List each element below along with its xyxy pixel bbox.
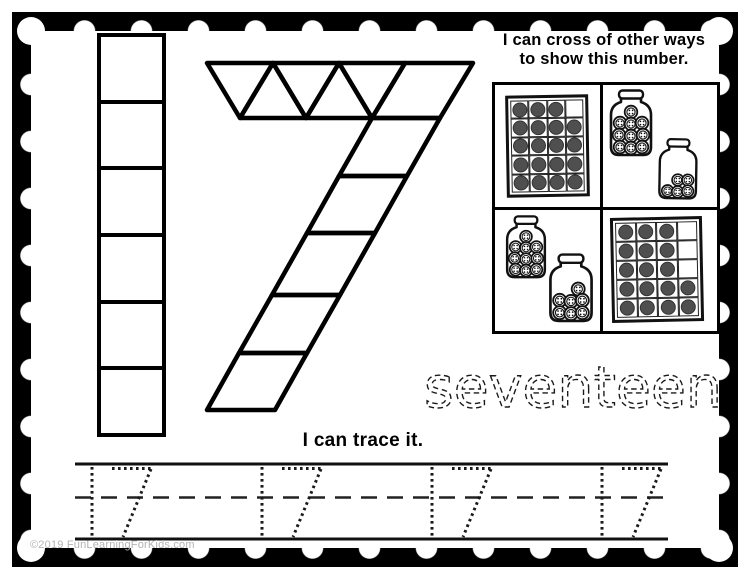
instruction-line-1: I can cross of other ways <box>478 31 730 50</box>
frame-cell <box>566 173 585 192</box>
representations-grid <box>492 82 720 334</box>
counter-dot <box>619 226 632 239</box>
counter-dot <box>550 121 563 134</box>
frame-cell <box>511 119 530 138</box>
counter-dot <box>640 263 653 276</box>
frame-cell <box>566 136 585 155</box>
counter-dot <box>568 139 581 152</box>
counter-dot <box>620 302 633 315</box>
frame-cell <box>529 155 548 174</box>
quadrant-twenty-frame-19 <box>495 85 600 207</box>
counter-dot <box>660 225 673 238</box>
trace-word-seventeen: seventeen <box>418 354 730 418</box>
twenty-frame <box>610 216 704 323</box>
trace-label: I can trace it. <box>278 430 448 452</box>
button-jar-icon <box>606 88 656 158</box>
frame-cell <box>548 155 567 174</box>
counter-dot <box>531 121 544 134</box>
frame-cell <box>636 222 657 241</box>
frame-cell <box>547 118 566 137</box>
frame-cell <box>565 118 584 137</box>
quadrant-button-jars-17 <box>495 210 600 331</box>
frame-cell <box>678 297 699 316</box>
frame-cell <box>617 298 638 317</box>
counter-dot <box>532 158 545 171</box>
frame-cell <box>656 241 677 260</box>
counter-dot <box>641 282 654 295</box>
traceable-numeral-17 <box>92 467 153 537</box>
unit-square-block <box>97 300 166 371</box>
scallop-corner <box>705 534 733 562</box>
button-jar-icon <box>654 137 701 202</box>
frame-cell <box>658 298 679 317</box>
counter-dot <box>550 158 563 171</box>
frame-cell <box>547 136 566 155</box>
counter-dot <box>551 176 564 189</box>
frame-cell <box>636 241 657 260</box>
quadrant-button-jars-15 <box>603 85 717 207</box>
unit-square-block <box>97 166 166 237</box>
number-one-block-column <box>97 33 166 437</box>
unit-square-block <box>97 100 166 171</box>
frame-cell <box>637 279 658 298</box>
counter-dot <box>661 301 674 314</box>
frame-cell <box>528 100 547 119</box>
frame-cell <box>511 137 530 156</box>
trace-word-text: seventeen <box>424 355 722 418</box>
counter-dot <box>513 103 526 116</box>
frame-cell <box>657 279 678 298</box>
frame-cell <box>548 173 567 192</box>
counter-dot <box>619 245 632 258</box>
frame-cell <box>637 298 658 317</box>
cross-off-instruction: I can cross of other ways to show this n… <box>478 31 730 69</box>
counter-dot <box>532 140 545 153</box>
frame-cell <box>565 99 584 118</box>
counter-dot <box>661 263 674 276</box>
counter-dot <box>569 176 582 189</box>
frame-cell <box>636 260 657 279</box>
scallop-corner <box>17 17 45 45</box>
frame-cell <box>615 241 636 260</box>
counter-dot <box>640 244 653 257</box>
unit-square-block <box>97 366 166 437</box>
counter-dot <box>660 244 673 257</box>
twenty-frame <box>505 94 590 197</box>
counter-dot <box>514 158 527 171</box>
frame-cell <box>529 137 548 156</box>
counter-dot <box>532 176 545 189</box>
frame-cell <box>615 222 636 241</box>
frame-cell <box>616 260 637 279</box>
counter-dot <box>620 264 633 277</box>
unit-square-block <box>97 33 166 104</box>
traceable-numeral-17 <box>602 467 663 537</box>
frame-cell <box>530 174 549 193</box>
frame-cell <box>677 221 698 240</box>
frame-cell <box>678 278 699 297</box>
frame-cell <box>657 260 678 279</box>
button-jar-icon <box>545 252 597 324</box>
counter-dot <box>620 283 633 296</box>
traceable-numeral-17 <box>432 467 493 537</box>
quadrant-twenty-frame-17 <box>603 210 717 331</box>
frame-cell <box>616 279 637 298</box>
unit-square-block <box>97 233 166 304</box>
scallop-edge-left <box>20 31 42 548</box>
counter-dot <box>682 300 695 313</box>
counter-dot <box>514 177 527 190</box>
frame-cell <box>511 156 530 175</box>
frame-cell <box>547 100 566 119</box>
frame-cell <box>510 100 529 119</box>
counter-dot <box>513 121 526 134</box>
traceable-numeral-17 <box>262 467 323 537</box>
frame-cell <box>566 155 585 174</box>
frame-cell <box>656 222 677 241</box>
frame-cell <box>677 259 698 278</box>
counter-dot <box>568 121 581 134</box>
frame-cell <box>511 174 530 193</box>
counter-dot <box>549 102 562 115</box>
instruction-line-2: to show this number. <box>478 50 730 69</box>
frame-cell <box>677 240 698 259</box>
frame-cell <box>529 118 548 137</box>
counter-dot <box>514 140 527 153</box>
counter-dot <box>531 103 544 116</box>
counter-dot <box>550 139 563 152</box>
counter-dot <box>569 157 582 170</box>
counter-dot <box>682 281 695 294</box>
counter-dot <box>661 282 674 295</box>
counter-dot <box>641 301 654 314</box>
copyright: ©2019 FunLearningForKids.com <box>30 539 195 551</box>
tracing-guide <box>74 460 670 542</box>
counter-dot <box>639 225 652 238</box>
